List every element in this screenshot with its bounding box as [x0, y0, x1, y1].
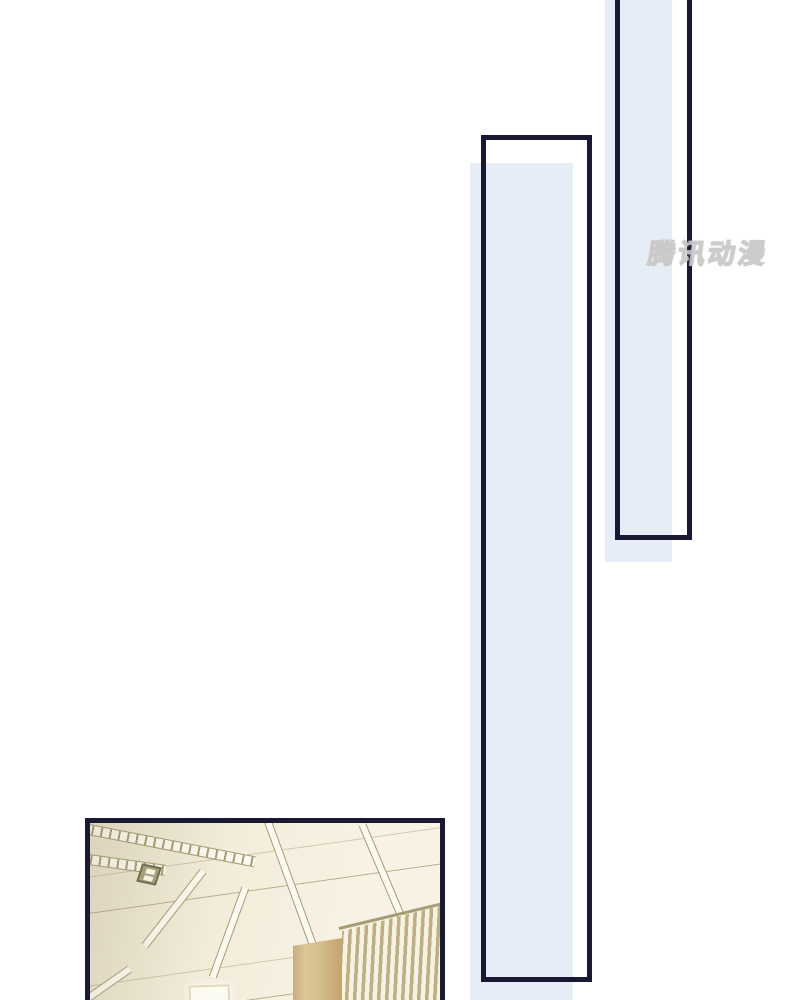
comic-panel-frame-middle — [481, 135, 592, 982]
ceiling-seam-strip — [90, 966, 132, 1000]
comic-panel-frame-top-right — [615, 0, 692, 540]
recessed-light — [188, 984, 230, 1000]
ceiling-seam-strip — [209, 886, 249, 978]
ceiling-seam-strip — [359, 823, 405, 918]
comic-page: 腾讯动漫 — [0, 0, 800, 1000]
wood-column — [293, 935, 342, 1000]
comic-panel-frame-bottom-left — [85, 818, 445, 1000]
ceiling-vent-fixture — [136, 863, 161, 885]
ceiling-seam-strip — [263, 823, 320, 957]
ceiling-scene — [90, 823, 440, 1000]
tencent-comics-watermark: 腾讯动漫 — [646, 240, 800, 270]
